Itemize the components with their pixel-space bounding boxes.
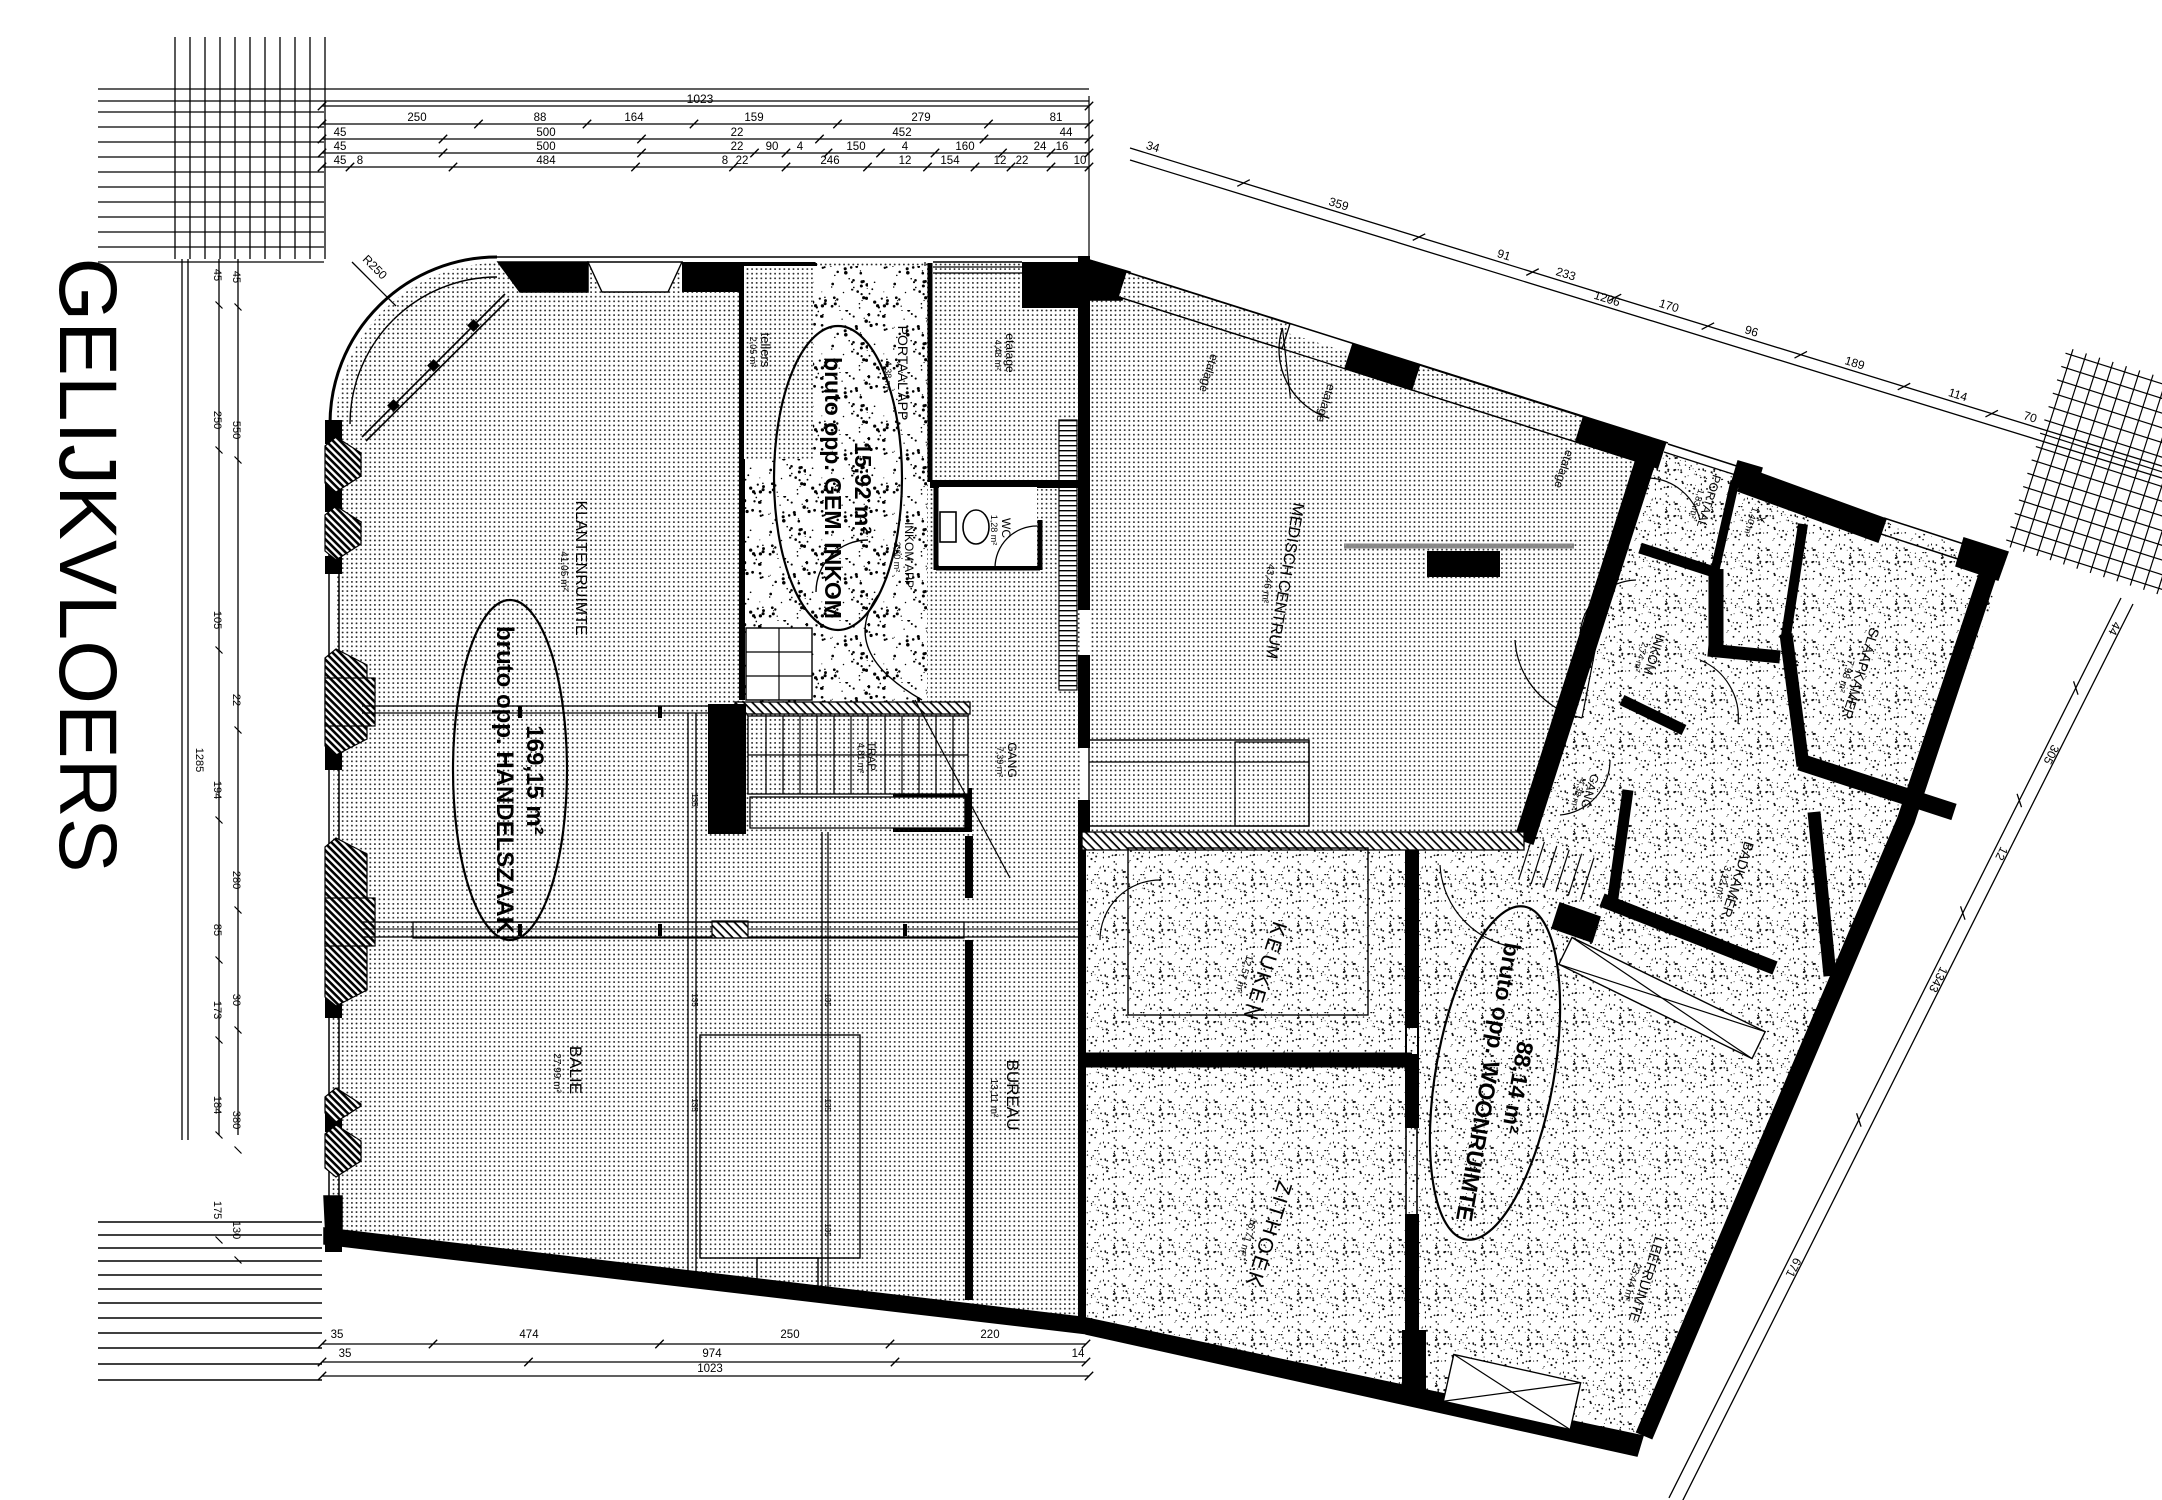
- svg-text:194: 194: [211, 781, 223, 799]
- svg-text:BUREAU: BUREAU: [1003, 1060, 1022, 1131]
- svg-text:250: 250: [780, 1329, 799, 1341]
- svg-text:974: 974: [702, 1348, 722, 1360]
- svg-text:452: 452: [892, 127, 911, 139]
- svg-text:380: 380: [230, 1111, 242, 1129]
- svg-text:484: 484: [536, 155, 556, 167]
- svg-text:159: 159: [744, 112, 763, 124]
- svg-text:41,05 m²: 41,05 m²: [558, 551, 569, 591]
- svg-text:175: 175: [211, 1201, 223, 1219]
- svg-text:88: 88: [534, 112, 547, 124]
- svg-text:550: 550: [230, 421, 242, 439]
- svg-text:150: 150: [846, 141, 865, 153]
- svg-text:24: 24: [1034, 141, 1047, 153]
- svg-text:250: 250: [407, 112, 426, 124]
- svg-text:22: 22: [1016, 155, 1029, 167]
- svg-text:500: 500: [536, 127, 555, 139]
- svg-text:154: 154: [940, 155, 960, 167]
- svg-text:4,48 m²: 4,48 m²: [993, 340, 1003, 371]
- svg-text:30: 30: [230, 994, 242, 1006]
- svg-text:474: 474: [519, 1329, 539, 1341]
- svg-text:22: 22: [736, 155, 749, 167]
- svg-text:1023: 1023: [687, 92, 714, 106]
- svg-text:14: 14: [1072, 1348, 1085, 1360]
- svg-text:8: 8: [357, 155, 363, 167]
- svg-text:135: 135: [690, 793, 699, 807]
- svg-text:184: 184: [211, 1096, 223, 1114]
- svg-text:BALIE: BALIE: [566, 1046, 585, 1094]
- svg-text:45: 45: [230, 271, 242, 283]
- svg-text:246: 246: [820, 155, 839, 167]
- svg-text:INKOM APP: INKOM APP: [902, 522, 916, 588]
- svg-text:8: 8: [722, 155, 728, 167]
- svg-text:135: 135: [690, 993, 699, 1007]
- svg-text:169,15 m²: 169,15 m²: [521, 725, 548, 834]
- svg-text:173: 173: [211, 1001, 223, 1019]
- svg-text:279: 279: [911, 112, 930, 124]
- svg-text:10: 10: [1074, 155, 1087, 167]
- svg-text:GELIJKVLOERS: GELIJKVLOERS: [42, 258, 133, 873]
- svg-text:1285: 1285: [193, 748, 205, 772]
- svg-text:etalage: etalage: [1003, 333, 1017, 373]
- svg-text:22: 22: [731, 141, 744, 153]
- svg-text:KLANTENRUIMTE: KLANTENRUIMTE: [572, 500, 589, 635]
- svg-text:44: 44: [1060, 127, 1073, 139]
- svg-text:1023: 1023: [697, 1363, 723, 1375]
- svg-text:13,11 m²: 13,11 m²: [988, 1079, 999, 1118]
- svg-text:12: 12: [899, 155, 912, 167]
- svg-text:1,28 m²: 1,28 m²: [989, 515, 999, 546]
- svg-text:4: 4: [797, 141, 804, 153]
- svg-text:2,05 m²: 2,05 m²: [748, 337, 758, 368]
- svg-text:35: 35: [331, 1329, 344, 1341]
- svg-text:85: 85: [211, 924, 223, 936]
- svg-text:4,81 m²: 4,81 m²: [856, 743, 866, 774]
- svg-text:45: 45: [334, 155, 347, 167]
- svg-text:22: 22: [731, 127, 744, 139]
- svg-text:45: 45: [334, 127, 347, 139]
- svg-text:220: 220: [980, 1329, 999, 1341]
- svg-text:160: 160: [955, 141, 974, 153]
- svg-text:164: 164: [624, 112, 644, 124]
- svg-text:250: 250: [211, 411, 223, 429]
- svg-text:130: 130: [230, 1221, 242, 1239]
- svg-text:PORTAAL APP: PORTAAL APP: [895, 326, 911, 421]
- svg-text:bruto opp. HANDELSZAAK: bruto opp. HANDELSZAAK: [491, 626, 518, 935]
- svg-text:WC: WC: [999, 518, 1013, 538]
- svg-text:15,92 m²: 15,92 m²: [850, 442, 876, 534]
- svg-text:16: 16: [1056, 141, 1069, 153]
- svg-text:12: 12: [994, 155, 1007, 167]
- svg-text:280: 280: [230, 871, 242, 889]
- svg-text:tellers: tellers: [758, 333, 773, 368]
- svg-text:27,99 m²: 27,99 m²: [551, 1053, 562, 1093]
- svg-text:bruto opp. GEM. INKOM: bruto opp. GEM. INKOM: [820, 357, 846, 619]
- svg-text:4: 4: [902, 141, 909, 153]
- svg-text:45: 45: [211, 269, 223, 281]
- svg-text:90: 90: [766, 141, 779, 153]
- svg-text:81: 81: [1050, 112, 1063, 124]
- svg-text:500: 500: [536, 141, 555, 153]
- svg-text:105: 105: [211, 611, 223, 629]
- svg-text:GANG: GANG: [1005, 742, 1019, 777]
- svg-text:135: 135: [690, 1098, 699, 1112]
- svg-text:45: 45: [334, 141, 347, 153]
- svg-text:7,39 m²: 7,39 m²: [995, 747, 1005, 778]
- svg-text:35: 35: [339, 1348, 352, 1360]
- svg-text:22: 22: [230, 694, 242, 706]
